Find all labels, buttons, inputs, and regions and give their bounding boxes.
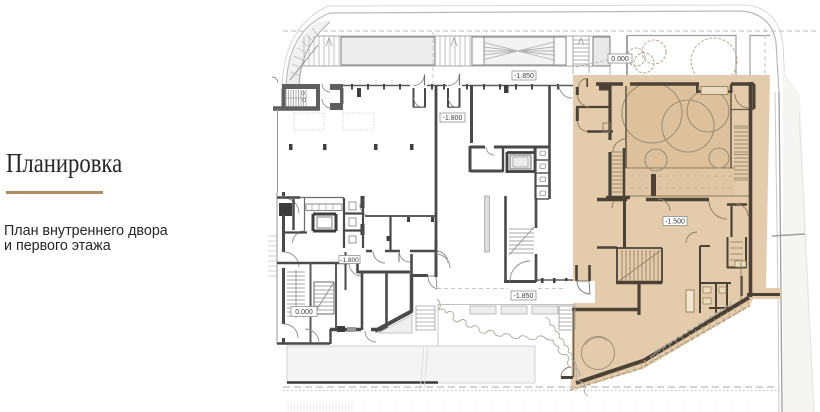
svg-text:-1.800: -1.800 xyxy=(443,115,463,122)
svg-text:-1.800: -1.800 xyxy=(340,257,359,264)
svg-text:-1.850: -1.850 xyxy=(514,73,534,80)
svg-text:0.000: 0.000 xyxy=(295,309,313,316)
svg-text:-1.500: -1.500 xyxy=(665,219,685,226)
svg-text:-1.850: -1.850 xyxy=(514,293,534,300)
svg-text:0.000: 0.000 xyxy=(611,56,629,63)
